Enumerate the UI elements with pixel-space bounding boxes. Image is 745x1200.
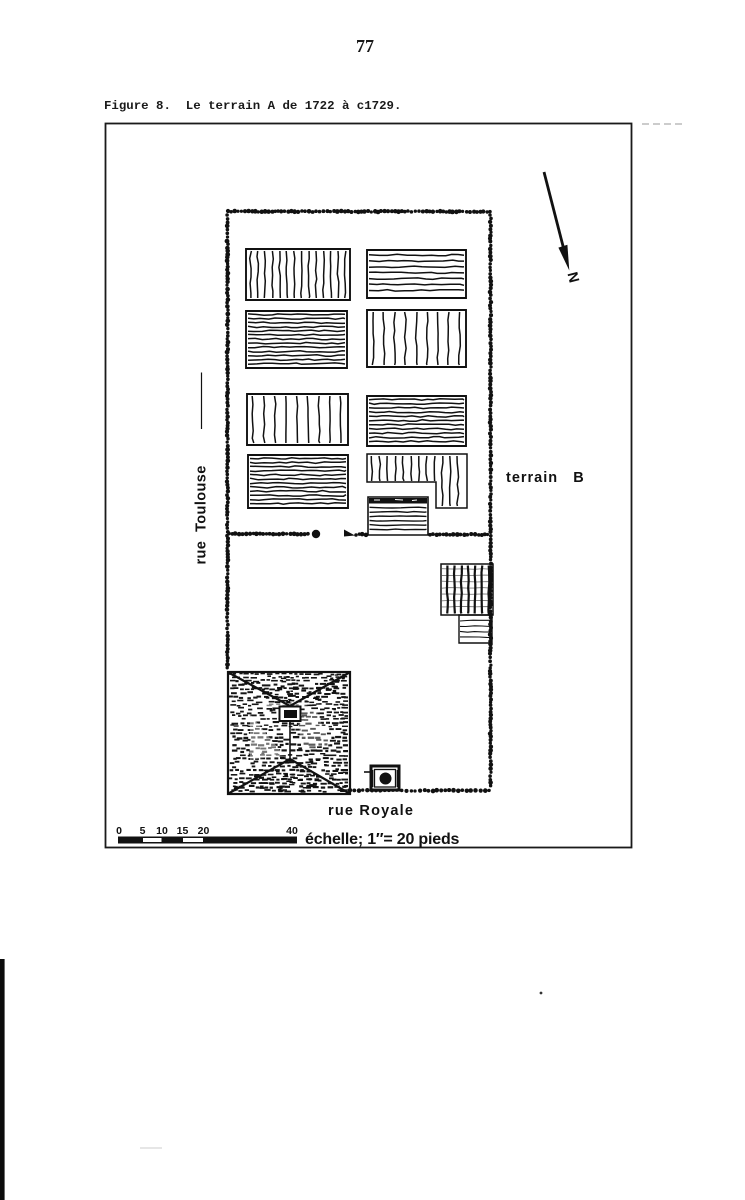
svg-text:rue Toulouse: rue Toulouse — [194, 465, 210, 564]
svg-text:terrain B: terrain B — [506, 470, 585, 486]
svg-text:5: 5 — [140, 825, 146, 837]
svg-text:échelle; 1″= 20 pieds: échelle; 1″= 20 pieds — [305, 831, 460, 848]
svg-text:40: 40 — [286, 825, 298, 837]
svg-text:N: N — [563, 270, 581, 284]
svg-text:10: 10 — [156, 825, 168, 837]
svg-text:0: 0 — [116, 825, 122, 837]
svg-text:rue Royale: rue Royale — [328, 803, 414, 819]
svg-text:15: 15 — [177, 825, 189, 837]
svg-text:20: 20 — [198, 825, 210, 837]
